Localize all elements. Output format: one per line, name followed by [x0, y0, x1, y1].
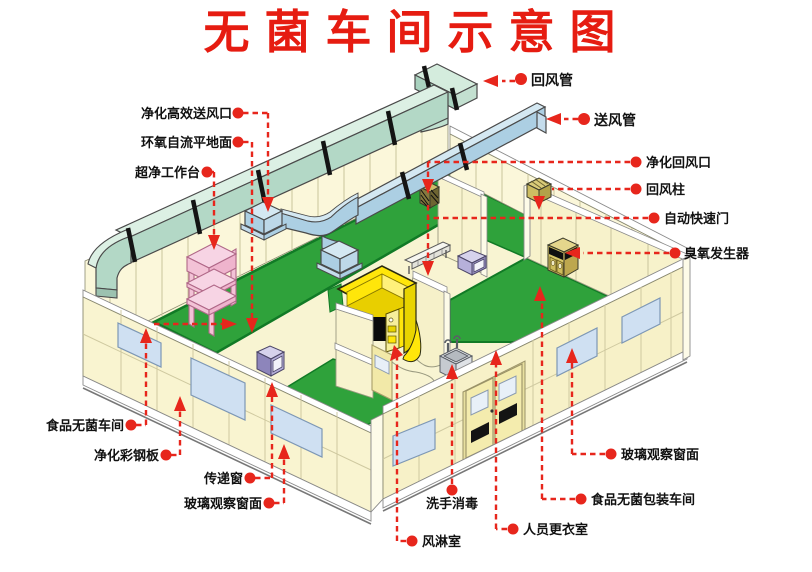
svg-text:净化彩钢板: 净化彩钢板	[94, 448, 160, 463]
svg-text:食品无菌包装车间: 食品无菌包装车间	[591, 492, 695, 507]
svg-text:净化回风口: 净化回风口	[646, 155, 711, 170]
svg-text:净化高效送风口: 净化高效送风口	[141, 106, 232, 121]
svg-text:食品无菌车间: 食品无菌车间	[46, 418, 124, 433]
svg-text:人员更衣室: 人员更衣室	[523, 522, 588, 537]
svg-text:玻璃观察窗面: 玻璃观察窗面	[621, 447, 699, 462]
svg-text:臭氧发生器: 臭氧发生器	[684, 246, 750, 261]
svg-text:传递窗: 传递窗	[203, 471, 243, 486]
svg-text:环氧自流平地面: 环氧自流平地面	[141, 135, 232, 150]
svg-text:洗手消毒: 洗手消毒	[426, 496, 478, 511]
svg-text:玻璃观察窗面: 玻璃观察窗面	[184, 496, 262, 511]
svg-text:自动快速门: 自动快速门	[664, 211, 729, 226]
svg-text:送风管: 送风管	[593, 112, 636, 128]
svg-text:风淋室: 风淋室	[422, 534, 461, 549]
svg-text:超净工作台: 超净工作台	[135, 165, 200, 180]
svg-text:回风柱: 回风柱	[646, 182, 685, 197]
svg-text:回风管: 回风管	[531, 72, 573, 88]
svg-text:无菌车间示意图: 无菌车间示意图	[204, 6, 631, 58]
